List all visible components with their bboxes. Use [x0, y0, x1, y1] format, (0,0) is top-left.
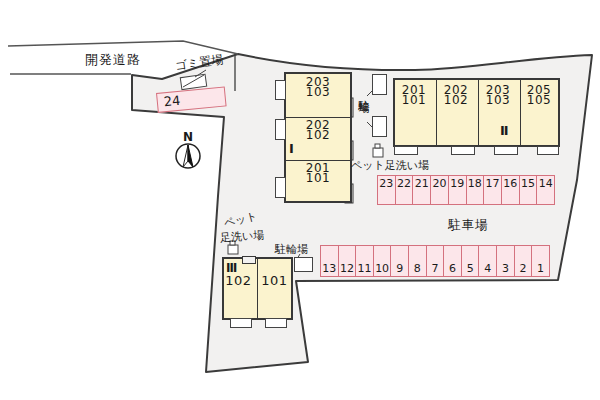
building-two-porch	[494, 146, 518, 155]
unit-number: 102	[294, 131, 342, 141]
site-plan-canvas: 開発道路 ゴミ置場 N 24 203 103 202 102 201 101 Ⅰ…	[0, 0, 600, 400]
building-two-porch	[537, 146, 559, 155]
parking-space-20: 20	[430, 176, 448, 204]
parking-space-15: 15	[519, 176, 537, 204]
parking-space-9: 9	[390, 246, 408, 276]
unit-number: 103	[476, 96, 520, 106]
building-three-unit-1: 102	[222, 273, 255, 288]
building-one-balcony	[275, 119, 286, 140]
north-label: N	[183, 130, 193, 144]
building-one-unit-3: 201 101	[294, 164, 342, 183]
building-two-porch	[451, 146, 475, 155]
bike-parking-label-mid: 駐輪場	[355, 91, 370, 133]
building-three-porch	[265, 318, 287, 328]
building-two-unit-4: 205 105	[517, 86, 561, 105]
parking-space-17: 17	[483, 176, 501, 204]
building-two-unit-3: 203 103	[476, 86, 520, 105]
building-two-name: Ⅱ	[500, 123, 509, 138]
parking-space-12: 12	[338, 246, 356, 276]
parking-row-upper: 23222120191817161514	[377, 175, 555, 205]
building-two-unit-2: 202 102	[434, 86, 478, 105]
pet-wash-label-bottom-line2: 足洗い場	[220, 227, 265, 245]
parking-space-7: 7	[426, 246, 444, 276]
parking-space-10: 10	[373, 246, 391, 276]
parking-space-5: 5	[461, 246, 479, 276]
bike-parking-stand	[372, 116, 387, 137]
parking-space-3: 3	[496, 246, 514, 276]
parking-space-4: 4	[478, 246, 496, 276]
building-one-balcony	[275, 177, 286, 198]
building-two-porch	[394, 146, 418, 155]
bike-parking-stand	[294, 257, 313, 272]
parking-space-8: 8	[408, 246, 426, 276]
building-one-unit-1: 203 103	[294, 78, 342, 97]
parking-space-14: 14	[536, 176, 554, 204]
unit-number: 101	[294, 174, 342, 184]
unit-number: 105	[517, 96, 561, 106]
bike-parking-label-bottom: 駐輪場	[275, 242, 308, 257]
parking-space-2: 2	[514, 246, 532, 276]
parking-space-11: 11	[355, 246, 373, 276]
bike-parking-stand	[372, 74, 387, 95]
parking-space-23: 23	[378, 176, 395, 204]
parking-space-1: 1	[531, 246, 549, 276]
parking-space-13: 13	[321, 246, 338, 276]
road-label: 開発道路	[85, 51, 141, 69]
building-one-unit-2: 202 102	[294, 121, 342, 140]
building-three-unit-divider	[257, 259, 258, 318]
parking-space-22: 22	[395, 176, 413, 204]
pet-wash-label-mid: ペット足洗い場	[351, 158, 429, 173]
building-three-top-notch	[242, 256, 256, 264]
parking-space-21: 21	[412, 176, 430, 204]
parking-space-6: 6	[443, 246, 461, 276]
building-one-name: Ⅰ	[289, 141, 294, 156]
unit-number: 103	[294, 88, 342, 98]
building-three-porch	[230, 318, 252, 328]
building-one-balcony	[275, 80, 286, 100]
parking-lot-label: 駐車場	[448, 217, 489, 234]
unit-number: 102	[434, 96, 478, 106]
parking-space-16: 16	[501, 176, 519, 204]
parking-space-18: 18	[466, 176, 484, 204]
parking-row-lower: 13121110987654321	[320, 245, 550, 277]
unit-number: 101	[392, 96, 436, 106]
building-three-unit-2: 101	[257, 273, 292, 288]
parking-space-19: 19	[448, 176, 466, 204]
building-two-unit-1: 201 101	[392, 86, 436, 105]
